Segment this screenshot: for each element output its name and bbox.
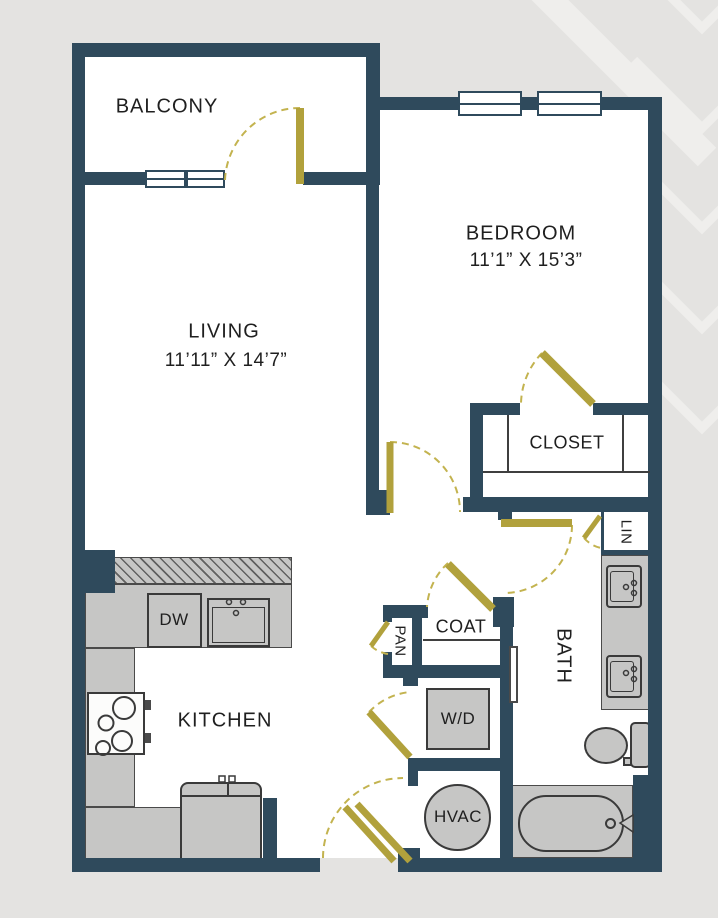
refrigerator [180, 782, 262, 860]
dishwasher-label: DW [159, 610, 188, 630]
coat-shelf-line [423, 639, 500, 641]
wall-linen-south [601, 550, 650, 555]
pattern-chevron [634, 0, 718, 28]
kitchen-backsplash-counter [114, 557, 292, 584]
kitchen-label: KITCHEN [178, 710, 273, 733]
bath-label: BATH [552, 628, 575, 684]
kitchen-counter-base [85, 807, 182, 860]
wall-living-bedroom-divider [366, 172, 379, 494]
wall-bath-west [500, 597, 513, 858]
refrigerator-line [180, 795, 262, 797]
wall-linen-west [601, 512, 604, 553]
wall-wd-jamb [403, 678, 418, 686]
wall-bath-door-jamb [498, 512, 512, 520]
wall-balcony-east [366, 43, 380, 185]
tub-drain [605, 818, 616, 829]
living-dimensions: 11’11” X 14’7” [165, 350, 287, 372]
wall-east [648, 97, 662, 872]
vanity-sink-1-basin [610, 571, 634, 602]
pantry-label: PAN [392, 625, 409, 656]
window-midline [147, 178, 184, 180]
bedroom-window-1 [458, 91, 522, 116]
bedroom-label: BEDROOM [466, 223, 576, 246]
linen-label: LIN [618, 520, 635, 545]
wall-coat-south [383, 665, 513, 678]
window-midline [188, 178, 223, 180]
balcony-label: BALCONY [116, 96, 219, 119]
toilet-hinge [623, 757, 632, 766]
wall-hallway-south [463, 497, 662, 512]
wall-south-a [72, 858, 320, 872]
window-midline [460, 103, 520, 105]
wall-balcony-south-a [72, 172, 146, 185]
wall-entry-corner [398, 848, 420, 872]
closet-rod-line-right [622, 415, 624, 472]
toilet-bowl [584, 727, 628, 764]
washer-dryer-label: W/D [441, 709, 476, 729]
window-midline [539, 103, 600, 105]
balcony-window-2 [186, 170, 225, 188]
closet-shelf-line [483, 471, 650, 473]
stove [87, 692, 145, 755]
closet-rod-line-left [507, 415, 509, 472]
bedroom-window-2 [537, 91, 602, 116]
wall-pantry-coat-divider [412, 618, 422, 667]
wall-closet-north-b [593, 403, 662, 415]
bedroom-dimensions: 11’1” X 15’3” [470, 250, 583, 272]
wall-closet-west [470, 403, 483, 497]
balcony-window-1 [145, 170, 186, 188]
wall-kitchen-block [72, 550, 115, 593]
wall-pantry-west-a [383, 605, 392, 622]
wall-kitchen-stub [263, 798, 277, 860]
floorplan: BALCONY LIVING 11’11” X 14’7” BEDROOM 11… [0, 0, 718, 918]
wall-wd-stub [408, 758, 418, 786]
wall-west [72, 43, 85, 872]
bath-wall-door-panel [509, 646, 518, 703]
refrigerator-divider [227, 784, 229, 796]
living-label: LIVING [188, 321, 260, 344]
wall-south-b [398, 858, 662, 872]
wall-wd-south [408, 758, 513, 771]
kitchen-sink-basin [212, 607, 265, 643]
coat-label: COAT [436, 617, 487, 638]
wall-north-balcony [72, 43, 375, 57]
vanity-sink-2-basin [610, 661, 634, 692]
hvac-label: HVAC [434, 807, 482, 827]
wall-divider-foot [366, 490, 390, 515]
closet-label: CLOSET [529, 433, 604, 454]
wall-closet-north-a [470, 403, 520, 415]
